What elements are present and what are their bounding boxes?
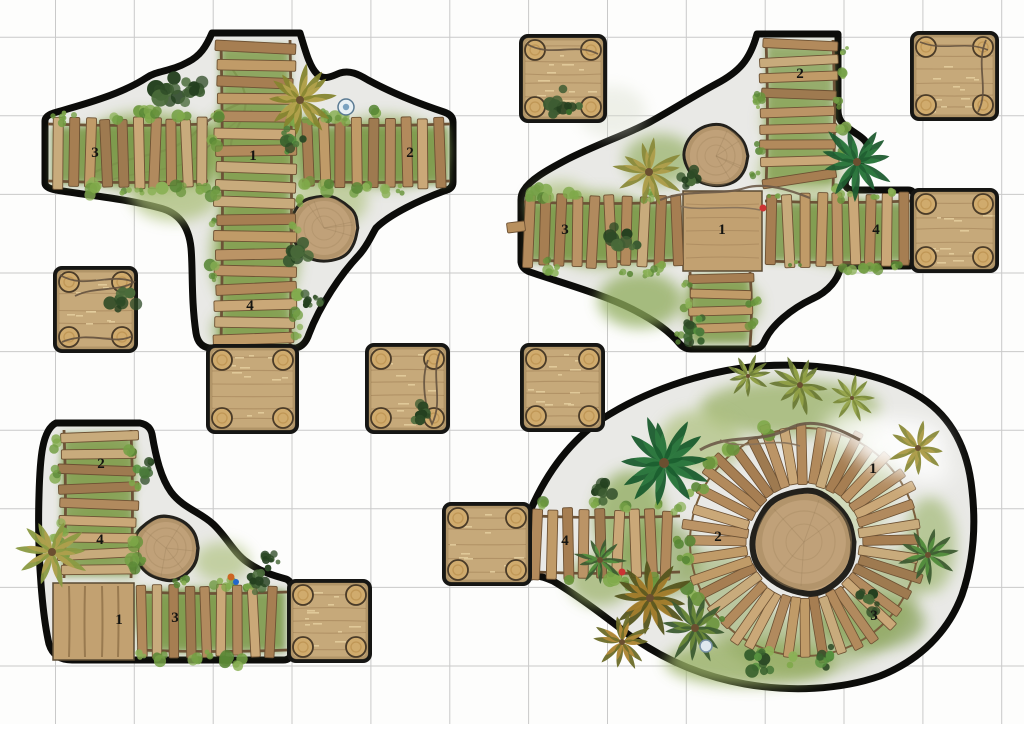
- svg-text:1: 1: [115, 612, 123, 628]
- svg-text:4: 4: [872, 222, 880, 238]
- svg-text:3: 3: [91, 145, 99, 161]
- svg-text:4: 4: [561, 533, 569, 549]
- svg-text:3: 3: [561, 222, 569, 238]
- svg-text:4: 4: [246, 298, 254, 314]
- svg-text:2: 2: [97, 456, 105, 472]
- svg-text:2: 2: [714, 529, 722, 545]
- svg-text:1: 1: [249, 148, 257, 164]
- svg-text:1: 1: [718, 222, 726, 238]
- svg-text:3: 3: [870, 608, 878, 624]
- svg-text:1: 1: [869, 461, 877, 477]
- svg-text:2: 2: [796, 66, 804, 82]
- svg-text:4: 4: [96, 532, 104, 548]
- svg-text:3: 3: [171, 610, 179, 626]
- svg-text:2: 2: [406, 145, 414, 161]
